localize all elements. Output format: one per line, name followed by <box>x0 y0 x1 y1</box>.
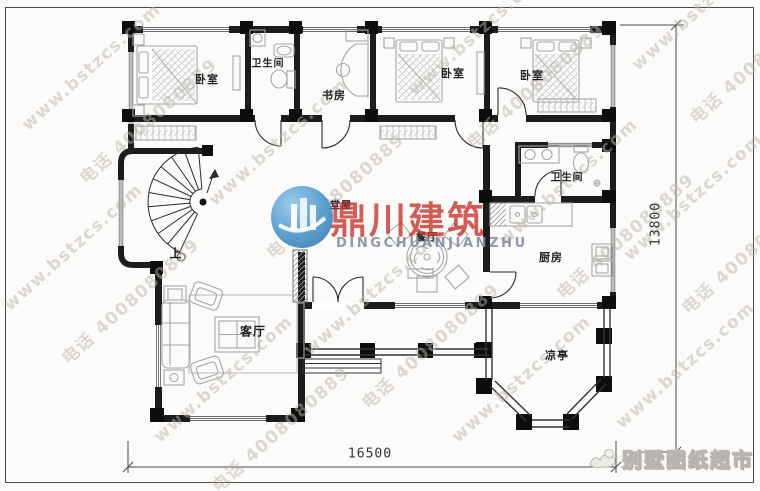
room-label-living: 客厅 <box>240 323 266 340</box>
room-label-gazebo: 凉亭 <box>545 347 569 363</box>
labels-layer: 卧室 卫生间 书房 卧室 卧室 堂屋 餐厅 卫生间 厨房 客厅 凉亭 上 165… <box>0 0 760 491</box>
room-label-bedroom1: 卧室 <box>195 71 219 87</box>
room-label-hall: 堂屋 <box>330 197 352 212</box>
room-label-study: 书房 <box>322 87 346 103</box>
room-label-bath1: 卫生间 <box>252 55 285 70</box>
dimension-width: 16500 <box>348 447 392 462</box>
floor-plan-page: www.bstzcs.com 电话 4008080889 www.bstzcs.… <box>0 0 760 491</box>
footer-brand-text: 别墅图纸超市 <box>622 444 754 473</box>
stair-up-label: 上 <box>169 245 182 262</box>
room-label-bedroom3: 卧室 <box>520 67 544 83</box>
room-label-bath2: 卫生间 <box>551 169 584 184</box>
room-label-kitchen: 厨房 <box>539 249 563 265</box>
room-label-dining: 餐厅 <box>416 229 438 244</box>
dimension-height: 13800 <box>649 202 664 246</box>
brand-stamp-icon <box>588 446 618 472</box>
room-label-bedroom2: 卧室 <box>441 65 465 81</box>
footer-brand: 别墅图纸超市 <box>588 444 754 473</box>
